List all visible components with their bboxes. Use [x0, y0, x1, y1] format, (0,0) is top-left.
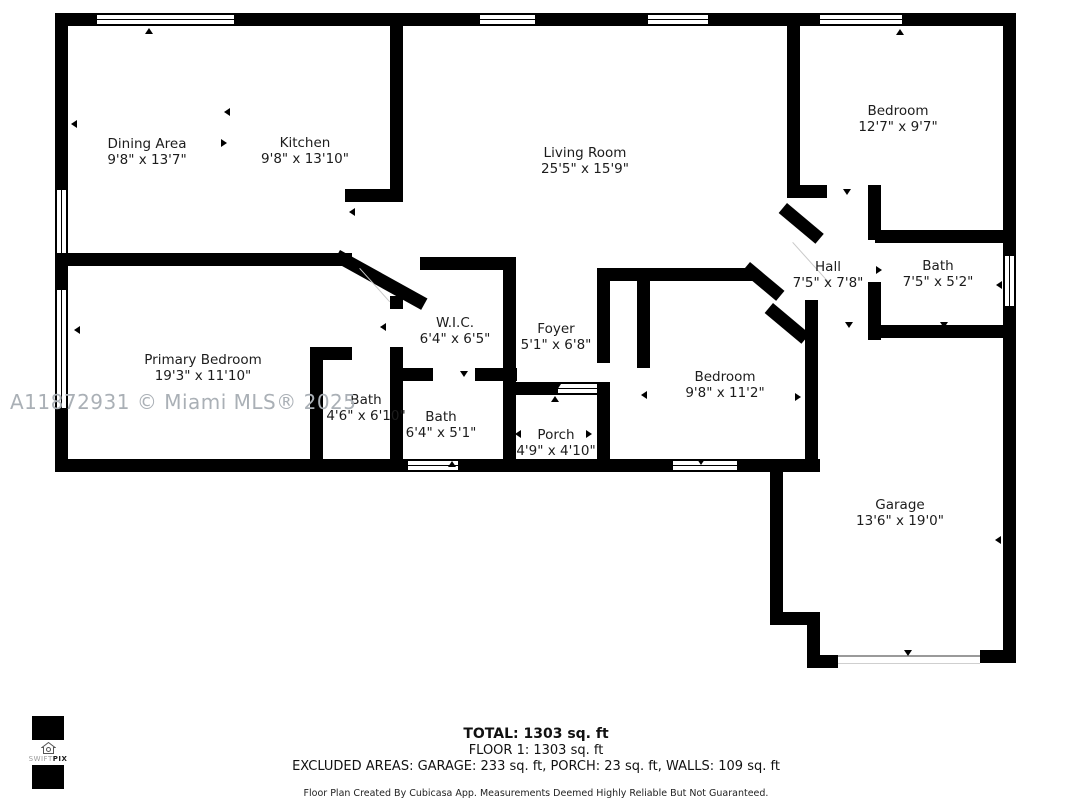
door-arrow-icon [845, 322, 853, 328]
swiftpix-house-icon [28, 742, 68, 754]
door-arrow-icon [876, 266, 882, 274]
room-dims: 19'3" x 11'10" [144, 368, 262, 384]
wall-dining-primary-divider [55, 253, 352, 266]
room-name: Bedroom [858, 103, 937, 119]
room-name: Living Room [541, 145, 629, 161]
total-area-text: TOTAL: 1303 sq. ft [0, 726, 1072, 742]
disclaimer-text: Floor Plan Created By Cubicasa App. Meas… [0, 788, 1072, 799]
garage-door-opening [838, 655, 980, 664]
door-arrow-icon [71, 120, 77, 128]
room-label-porch: Porch 4'9" x 4'10" [516, 427, 595, 459]
room-label-bath-hall: Bath 6'4" x 5'1" [406, 409, 477, 441]
room-name: Kitchen [261, 135, 349, 151]
wall-living-bedroom-divider [787, 13, 800, 190]
wall-garage-bottom-right [980, 650, 1016, 663]
room-name: Bedroom [685, 369, 764, 385]
floor-area-text: FLOOR 1: 1303 sq. ft [0, 743, 1072, 758]
wall-bedroom-right [805, 300, 818, 472]
wall-garage-top [868, 325, 1003, 338]
wall-wic-top [420, 257, 516, 270]
door-arrow-icon [641, 391, 647, 399]
room-dims: 9'8" x 11'2" [685, 385, 764, 401]
door-arrow-icon [349, 208, 355, 216]
wall-diagonal-wic [334, 250, 428, 310]
wall-wic-bath2-divider-b [475, 368, 517, 381]
door-arrow-icon [772, 545, 778, 553]
door-arrow-icon [380, 323, 386, 331]
window-bath-right [1003, 256, 1016, 306]
door-arrow-icon [143, 256, 151, 262]
room-dims: 9'8" x 13'10" [261, 151, 349, 167]
room-dims: 7'5" x 7'8" [793, 275, 864, 291]
logo-block-top [32, 716, 64, 740]
door-gap-wic [390, 309, 403, 347]
room-dims: 6'4" x 5'1" [406, 425, 477, 441]
door-arrow-icon [551, 461, 559, 467]
door-arrow-icon [996, 281, 1002, 289]
door-arrow-icon [460, 371, 468, 377]
wall-kitchen-right [390, 26, 403, 202]
room-dims: 9'8" x 13'7" [107, 152, 186, 168]
wall-diagonal-hall [765, 303, 810, 344]
wall-bedroom-top [597, 268, 755, 281]
wall-garage-jog [770, 612, 820, 625]
door-arrow-icon [184, 461, 192, 467]
room-name: W.I.C. [420, 315, 491, 331]
room-label-dining-area: Dining Area 9'8" x 13'7" [107, 136, 186, 168]
door-arrow-icon [940, 322, 948, 328]
room-name: Primary Bedroom [144, 352, 262, 368]
room-dims: 12'7" x 9'7" [858, 119, 937, 135]
door-arrow-icon [367, 460, 375, 466]
room-name: Bath [903, 258, 974, 274]
wall-porch-right [597, 382, 610, 472]
wall-kitchen-stub [345, 189, 403, 202]
room-name: Dining Area [107, 136, 186, 152]
wall-foyer-left [503, 257, 516, 472]
wall-garage-bottom-left [807, 655, 838, 668]
room-name: Foyer [521, 321, 592, 337]
mls-watermark: A11872931 © Miami MLS® 2025 [10, 390, 357, 414]
door-arrow-icon [224, 108, 230, 116]
window-porch [558, 382, 598, 395]
room-name: Garage [856, 497, 944, 513]
excluded-areas-text: EXCLUDED AREAS: GARAGE: 233 sq. ft, PORC… [0, 759, 1072, 774]
room-label-foyer: Foyer 5'1" x 6'8" [521, 321, 592, 353]
footer-summary: TOTAL: 1303 sq. ft FLOOR 1: 1303 sq. ft … [0, 726, 1072, 799]
door-arrow-icon [74, 326, 80, 334]
room-label-bath-right: Bath 7'5" x 5'2" [903, 258, 974, 290]
wall-diagonal-hall-entry [779, 203, 824, 244]
wall-right [1003, 13, 1016, 660]
logo-block-bottom [32, 765, 64, 789]
door-gap-bath [868, 240, 881, 282]
door-arrow-icon [939, 237, 947, 243]
room-label-bedroom-center: Bedroom 9'8" x 11'2" [685, 369, 764, 401]
room-dims: 4'9" x 4'10" [516, 443, 595, 459]
door-arrow-icon [697, 459, 705, 465]
door-arrow-icon [145, 28, 153, 34]
door-arrow-icon [995, 536, 1001, 544]
room-name: Bath [406, 409, 477, 425]
wall-diagonal-bedroom [742, 262, 785, 301]
door-arrow-icon [795, 393, 801, 401]
door-arrow-icon [221, 139, 227, 147]
window-bedroom-top [820, 13, 902, 26]
door-arrow-icon [896, 29, 904, 35]
brand-part-swift: SWIFT [29, 755, 53, 763]
room-dims: 13'6" x 19'0" [856, 513, 944, 529]
wall-tr-bedroom-bottom [787, 185, 827, 198]
room-dims: 7'5" x 5'2" [903, 274, 974, 290]
room-label-hall: Hall 7'5" x 7'8" [793, 259, 864, 291]
door-arrow-icon [553, 384, 561, 390]
room-label-garage: Garage 13'6" x 19'0" [856, 497, 944, 529]
room-name: Hall [793, 259, 864, 275]
window-living-top-1 [480, 13, 535, 26]
wall-wic-bath2-divider-a [403, 368, 433, 381]
room-dims: 6'4" x 6'5" [420, 331, 491, 347]
door-arrow-icon [448, 461, 456, 467]
room-name: Porch [516, 427, 595, 443]
window-bedroom-bottom [673, 459, 737, 472]
room-label-living-room: Living Room 25'5" x 15'9" [541, 145, 629, 177]
room-label-primary-bedroom: Primary Bedroom 19'3" x 11'10" [144, 352, 262, 384]
wall-foyer-right [597, 268, 610, 363]
window-living-top-2 [648, 13, 708, 26]
door-arrow-icon [843, 189, 851, 195]
door-arrow-icon [791, 108, 797, 116]
door-arrow-icon [904, 650, 912, 656]
floorplan-canvas: Dining Area 9'8" x 13'7" Kitchen 9'8" x … [0, 0, 1072, 804]
room-dims: 5'1" x 6'8" [521, 337, 592, 353]
wall-bedroom-left [637, 268, 650, 368]
room-label-bedroom-top-right: Bedroom 12'7" x 9'7" [858, 103, 937, 135]
room-label-wic: W.I.C. 6'4" x 6'5" [420, 315, 491, 347]
room-dims: 25'5" x 15'9" [541, 161, 629, 177]
room-label-kitchen: Kitchen 9'8" x 13'10" [261, 135, 349, 167]
door-arrow-icon [551, 396, 559, 402]
brand-part-pix: PIX [53, 755, 68, 763]
swiftpix-brand-text: SWIFTPIX [28, 755, 68, 763]
window-dining-top [97, 13, 234, 26]
swiftpix-logo: SWIFTPIX [28, 716, 68, 789]
window-dining-left [55, 190, 68, 253]
